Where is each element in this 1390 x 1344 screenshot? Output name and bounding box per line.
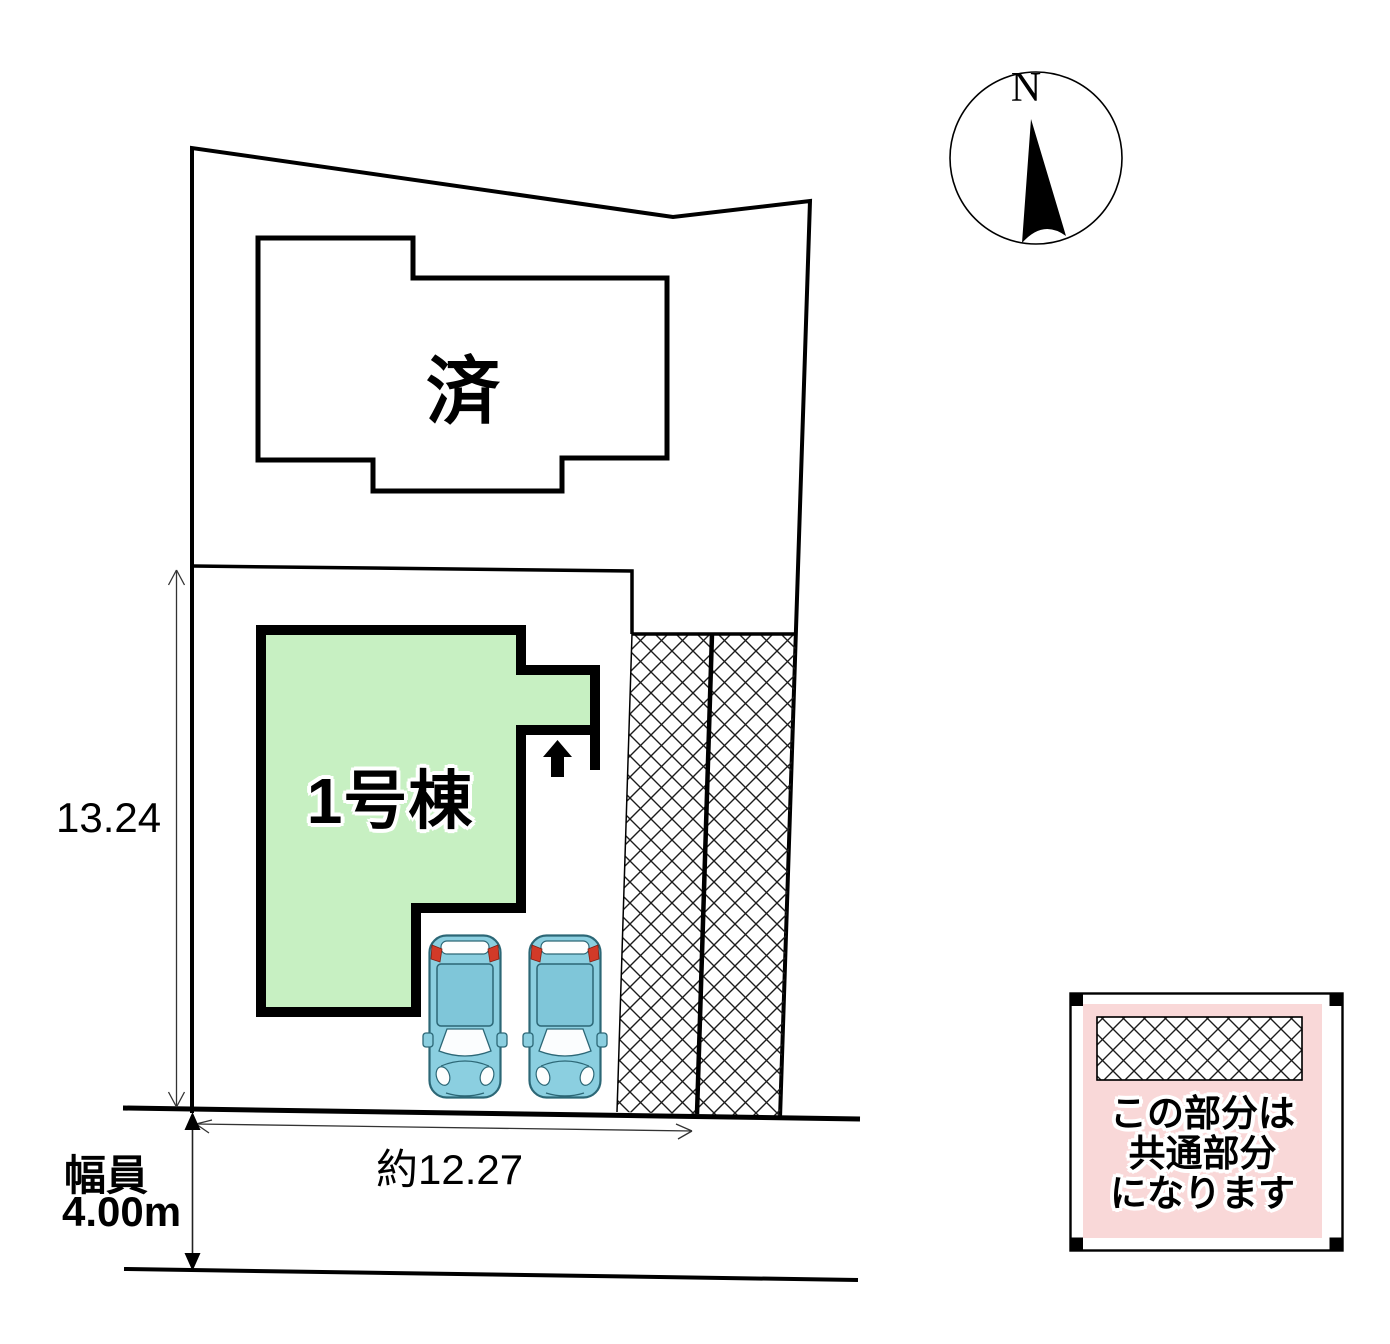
parcel-divider-line [193,566,632,634]
car-1 [423,936,507,1098]
compass-north-letter: N [1000,64,1052,112]
legend-caption-line3: になります [1083,1174,1322,1214]
sold-unit-label: 済 [421,332,505,439]
entrance-arrow-icon [543,740,572,777]
site-plan-canvas: 済 1号棟 13.24 約12.27 幅員 4.00m N この部分は 共通部分… [0,0,1390,1344]
dimension-road-width [185,1112,201,1271]
frontage-dimension-text: 約12.27 [376,1136,523,1197]
legend-caption: この部分は 共通部分 になります [1083,1094,1322,1214]
north-needle-icon [1022,119,1066,243]
legend-hatch-swatch [1097,1017,1302,1080]
dimension-depth [169,570,185,1107]
legend-caption-line1: この部分は [1083,1094,1322,1134]
depth-dimension-text: 13.24 [56,794,150,842]
road-width-value: 4.00m [62,1188,181,1236]
car-2 [523,936,607,1098]
legend-caption-line2: 共通部分 [1083,1134,1322,1174]
road-edge-bottom [124,1269,858,1280]
unit1-label: 1号棟 [284,750,496,842]
